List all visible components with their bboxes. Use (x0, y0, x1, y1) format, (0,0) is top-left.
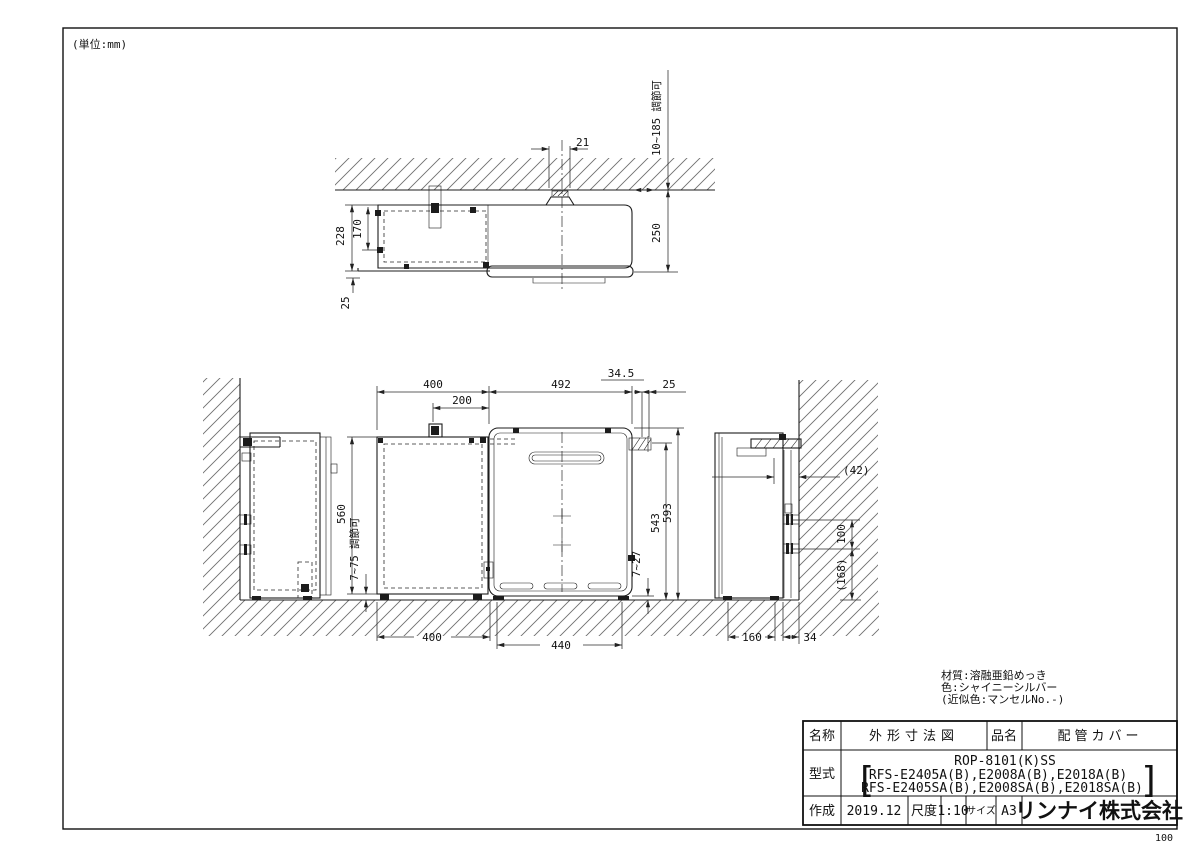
dim-440: 440 (551, 639, 571, 652)
dim-7-27: 7~27 (630, 551, 643, 578)
unit-note: (単位:mm) (72, 37, 127, 51)
date-label: 作成 (809, 804, 835, 819)
dim-593: 593 (661, 503, 674, 523)
dim-10-185: 10~185 調節可 (650, 80, 663, 156)
dim-42: (42) (843, 464, 870, 477)
note-approx-color: (近似色:マンセルNo.-) (941, 692, 1064, 706)
scale-label: 尺度 (911, 803, 937, 819)
dim-560: 560 (335, 504, 348, 524)
material-notes: 材質:溶融亜鉛めっき 色:シャイニーシルバー (近似色:マンセルNo.-) (941, 668, 1064, 706)
note-color: 色:シャイニーシルバー (941, 680, 1057, 694)
model-main: ROP-8101(K)SS (954, 754, 1056, 769)
model-line2: RFS-E2405SA(B),E2008SA(B),E2018SA(B) (861, 781, 1143, 796)
dim-34: 34 (803, 631, 817, 644)
dim-21: 21 (576, 136, 589, 149)
model-label: 型式 (809, 767, 835, 782)
sheet-number: 100 (1155, 833, 1173, 844)
size-label: サイズ (966, 804, 996, 817)
drawing-name: 外形寸法図 (869, 729, 959, 744)
date-value: 2019.12 (847, 804, 902, 819)
dim-200: 200 (452, 394, 472, 407)
dim-228: 228 (334, 226, 347, 246)
name-label: 名称 (809, 728, 835, 744)
note-material: 材質:溶融亜鉛めっき (941, 668, 1047, 682)
dim-25-top: 25 (339, 296, 352, 309)
drawing-sheet: (単位:mm) 21 10~185 調節可 (0, 0, 1200, 849)
product-label: 品名 (991, 728, 1017, 744)
pipe-cover-front (484, 428, 651, 600)
dim-168: (168) (835, 558, 848, 591)
dim-250: 250 (650, 223, 663, 243)
dim-170: 170 (351, 219, 364, 239)
dim-25-front: 25 (662, 378, 675, 391)
company-name: リンナイ株式会社 (1015, 799, 1183, 823)
dim-400-bottom: 400 (422, 631, 442, 644)
dim-34-5: 34.5 (608, 367, 635, 380)
cad-drawing: (単位:mm) 21 10~185 調節可 (0, 0, 1200, 849)
product-name: 配管カバー (1057, 729, 1142, 744)
floor-hatch (203, 600, 879, 636)
dim-400-top: 400 (423, 378, 443, 391)
wall-hatch-left (203, 378, 240, 600)
dim-100: 100 (835, 524, 848, 544)
dim-160: 160 (742, 631, 762, 644)
scale-value: 1:10 (937, 804, 968, 819)
wall-hatch-top (335, 158, 715, 190)
dim-7-75: 7~75 調節可 (348, 517, 361, 580)
dim-492: 492 (551, 378, 571, 391)
